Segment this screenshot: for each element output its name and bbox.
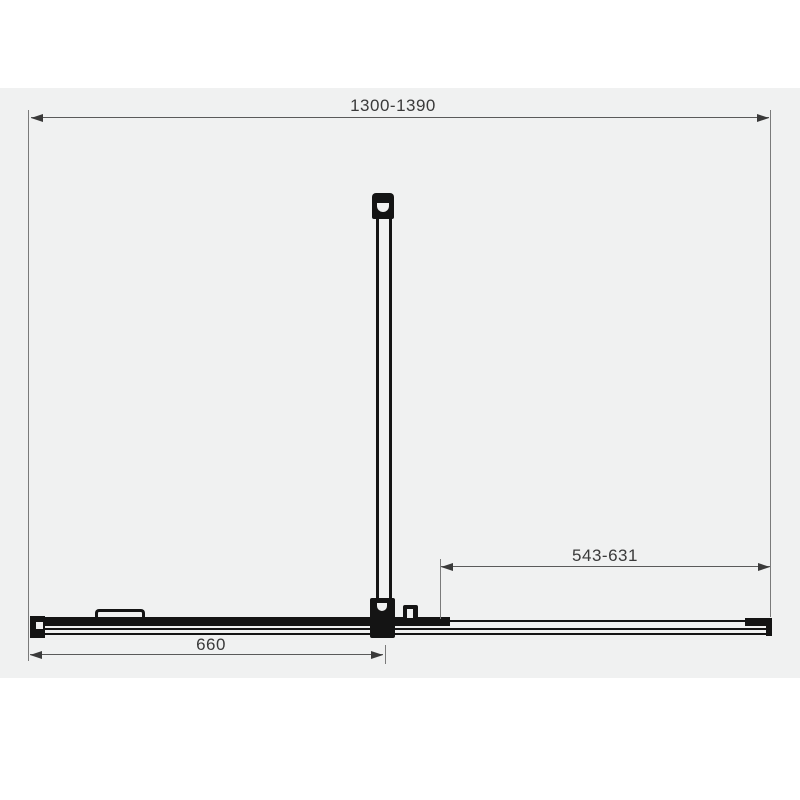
drawing-canvas: 1300-1390 543-631 660 — [0, 0, 800, 800]
dimension-line-overall-width — [31, 117, 769, 118]
dimension-label-fixed-panel-width: 660 — [146, 636, 276, 654]
extension-line-660-right — [385, 645, 386, 664]
dimension-arrow-left-icon — [31, 114, 43, 122]
wall-profile-left-notch — [36, 622, 43, 629]
door-stop-fitting — [403, 605, 418, 626]
dimension-arrow-right-icon — [371, 651, 383, 659]
wall-profile-left — [30, 616, 45, 638]
glass-clamp-top-notch — [377, 203, 389, 212]
dimension-line-door-width — [441, 566, 770, 567]
track-bottom-line — [45, 633, 772, 635]
rail-end-cap-right — [766, 618, 772, 636]
extension-line-left-wall — [28, 110, 29, 661]
extension-line-right-wall — [770, 110, 771, 617]
glass-panel-vertical-right-edge — [389, 218, 392, 601]
glass-clamp-top — [372, 193, 394, 219]
sliding-door-top-edge — [450, 620, 772, 622]
diagram-background-panel — [0, 88, 800, 678]
dimension-arrow-left-icon — [30, 651, 42, 659]
glass-panel-vertical-left-edge — [376, 218, 379, 601]
dimension-label-overall-width: 1300-1390 — [328, 97, 458, 115]
dimension-arrow-right-icon — [758, 563, 770, 571]
extension-line-door-left — [440, 559, 441, 619]
dimension-arrow-left-icon — [441, 563, 453, 571]
dimension-arrow-right-icon — [757, 114, 769, 122]
dimension-label-door-width: 543-631 — [540, 547, 670, 565]
handle-bracket — [95, 609, 145, 620]
glass-clamp-bottom — [370, 598, 395, 638]
track-middle-line — [45, 628, 772, 630]
dimension-line-fixed-panel-width — [30, 654, 383, 655]
glass-clamp-bottom-notch — [377, 603, 387, 611]
door-stop-fitting-notch — [407, 609, 413, 618]
